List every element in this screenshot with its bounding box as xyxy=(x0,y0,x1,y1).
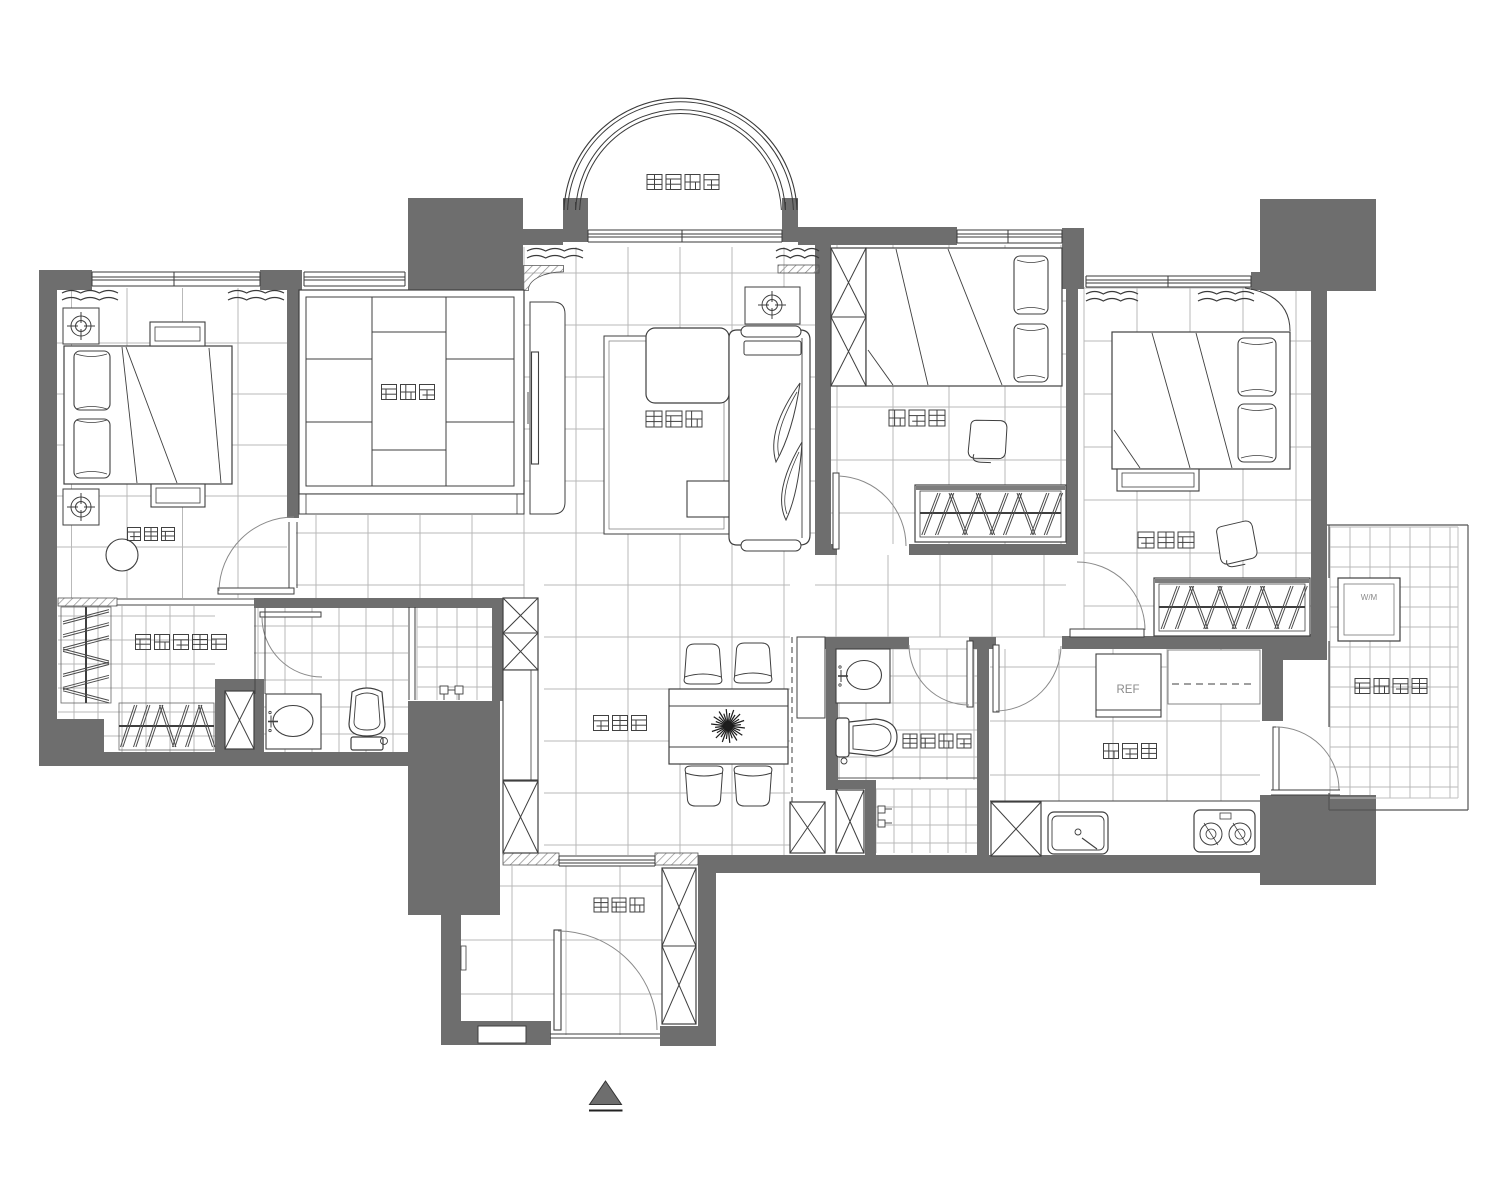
svg-text:REF: REF xyxy=(1117,684,1140,696)
svg-text:W/M: W/M xyxy=(1361,593,1378,602)
